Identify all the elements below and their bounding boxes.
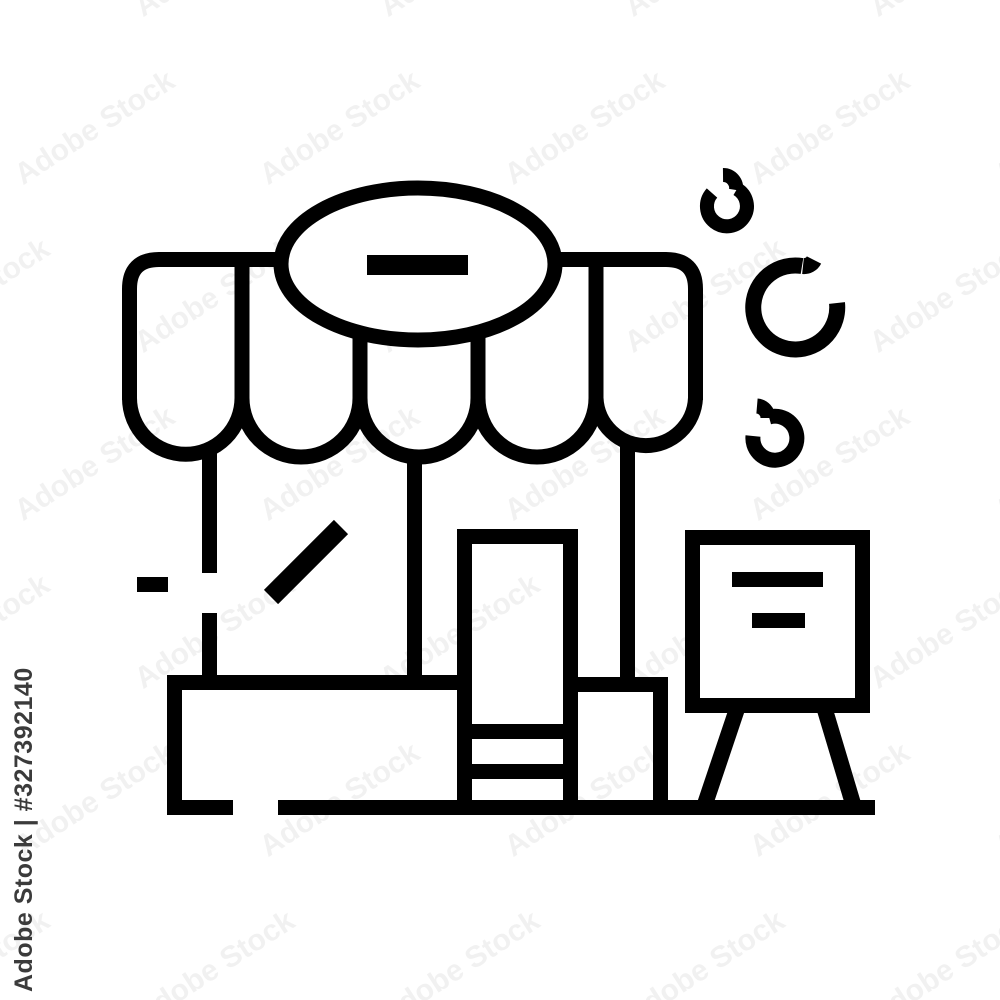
swirl-small-top-icon xyxy=(707,175,747,226)
stock-image-preview: Adobe StockAdobe StockAdobe StockAdobe S… xyxy=(0,0,1000,1000)
door xyxy=(458,537,577,816)
swirl-large-middle-icon xyxy=(753,260,837,349)
storefront-line-icon xyxy=(0,0,1000,1000)
a-frame-sidewalk-sign xyxy=(693,538,863,808)
decorative-swirls xyxy=(707,175,837,460)
watermark-credit-text: Adobe Stock | #327392140 xyxy=(10,667,39,992)
sign-right-leg xyxy=(822,700,854,807)
shop-wall-posts xyxy=(137,446,628,692)
window-shine-diagonal xyxy=(271,527,341,597)
right-platform xyxy=(572,685,661,808)
oval-sign xyxy=(281,188,555,340)
left-platform xyxy=(175,683,463,808)
awning-scallops xyxy=(130,398,696,457)
sign-left-leg xyxy=(704,700,740,807)
swirl-small-bottom-icon xyxy=(753,406,797,460)
door-steps xyxy=(458,732,577,772)
